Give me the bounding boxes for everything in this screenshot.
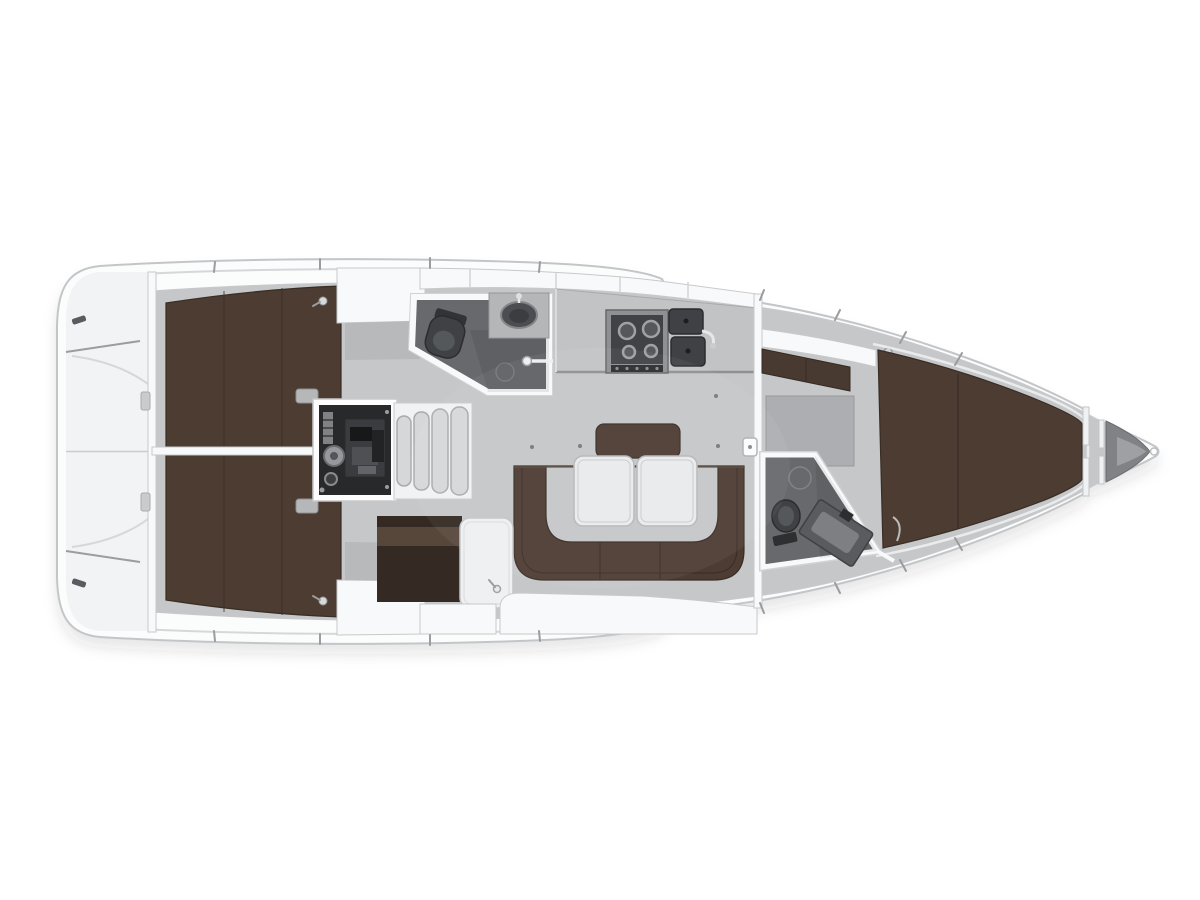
bow-bulkhead-bottom [1083, 458, 1089, 496]
stem-fitting [1151, 448, 1158, 455]
engine-filter [325, 473, 337, 485]
engine-belt-cover [372, 430, 384, 462]
companionway-step-1 [397, 416, 411, 486]
locker-divider-top [1099, 420, 1104, 448]
toilet-seat [778, 506, 794, 526]
pulley-hub [330, 452, 338, 460]
burner-icon [643, 321, 659, 337]
stern-swim-platform [66, 272, 156, 632]
bulkhead-fitting-bottom [141, 493, 150, 511]
light-overlay [410, 348, 790, 588]
bolt [320, 488, 325, 493]
locker-divider-bottom [1099, 456, 1104, 484]
floor-plan-canvas [0, 0, 1200, 900]
burner-icon [619, 323, 635, 339]
bulkhead-fitting-top [141, 392, 150, 410]
engine-mount [358, 466, 376, 474]
bolt [385, 485, 389, 489]
aft-cabin-divider-wall [152, 447, 316, 455]
bolt [385, 410, 389, 414]
berth-latch-starboard [319, 597, 327, 605]
bow-bulkhead-top [1083, 407, 1089, 445]
yacht-floor-plan [0, 0, 1200, 900]
engine-compartment [313, 399, 397, 501]
faucet-base [710, 343, 716, 349]
engine-manifold [350, 427, 372, 441]
sink-drain [684, 319, 689, 324]
sink-drain [686, 349, 691, 354]
bottom-locker [420, 604, 496, 634]
faucet-knob [516, 293, 522, 299]
sink-drain [509, 309, 529, 323]
berth-latch-port [319, 297, 327, 305]
